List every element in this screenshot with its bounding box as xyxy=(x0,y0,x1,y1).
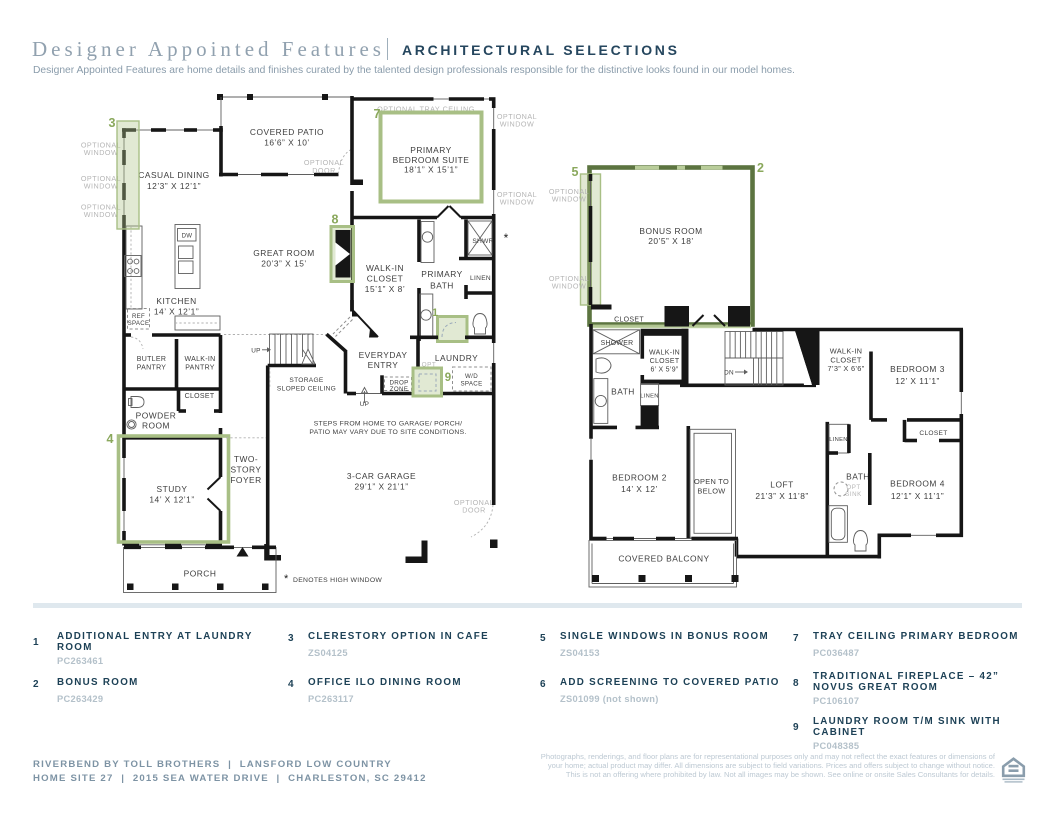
svg-text:16’6” X 10’: 16’6” X 10’ xyxy=(264,138,310,148)
svg-text:PATIO MAY VARY DUE TO SITE CON: PATIO MAY VARY DUE TO SITE CONDITIONS. xyxy=(309,429,466,436)
svg-text:2: 2 xyxy=(757,161,764,175)
svg-text:WINDOW: WINDOW xyxy=(552,195,587,204)
svg-text:12’3” X 12’1”: 12’3” X 12’1” xyxy=(147,181,201,191)
svg-text:SINK: SINK xyxy=(845,491,862,498)
svg-text:DOOR: DOOR xyxy=(462,506,486,515)
svg-text:3: 3 xyxy=(109,116,116,130)
svg-text:SPACE: SPACE xyxy=(128,320,150,327)
svg-text:WINDOW: WINDOW xyxy=(500,198,535,207)
svg-text:DN: DN xyxy=(724,370,734,377)
svg-text:CLOSET: CLOSET xyxy=(830,355,862,364)
svg-text:PRIMARY: PRIMARY xyxy=(421,269,463,279)
svg-text:PRIMARY: PRIMARY xyxy=(410,145,452,155)
svg-text:SPACE: SPACE xyxy=(460,381,482,388)
svg-text:POWDER: POWDER xyxy=(136,411,177,421)
svg-text:21’3” X 11’8”: 21’3” X 11’8” xyxy=(755,491,808,501)
svg-text:LINEN: LINEN xyxy=(640,394,659,400)
svg-text:WALK-IN: WALK-IN xyxy=(649,350,680,357)
svg-text:SLOPED CEILING: SLOPED CEILING xyxy=(277,386,336,393)
svg-text:SHWR: SHWR xyxy=(472,238,493,245)
svg-text:BONUS ROOM: BONUS ROOM xyxy=(639,226,702,236)
svg-text:STORAGE: STORAGE xyxy=(289,377,324,384)
svg-text:ZONE: ZONE xyxy=(390,386,408,393)
svg-text:29’1” X 21’1”: 29’1” X 21’1” xyxy=(355,482,409,492)
svg-text:WALK-IN: WALK-IN xyxy=(366,263,404,273)
svg-text:*: * xyxy=(284,573,289,585)
svg-text:UP: UP xyxy=(360,401,369,408)
svg-text:18’1” X 15’1”: 18’1” X 15’1” xyxy=(404,165,458,175)
svg-text:UP: UP xyxy=(251,348,260,355)
svg-text:KITCHEN: KITCHEN xyxy=(156,296,196,306)
svg-text:WINDOW: WINDOW xyxy=(84,210,119,219)
svg-text:CLOSET: CLOSET xyxy=(185,393,215,400)
svg-text:WINDOW: WINDOW xyxy=(552,282,587,291)
svg-text:STEPS FROM HOME TO GARAGE/ POR: STEPS FROM HOME TO GARAGE/ PORCH/ xyxy=(314,421,463,428)
svg-text:BATH: BATH xyxy=(846,472,870,482)
svg-text:4: 4 xyxy=(107,432,114,446)
svg-text:PANTRY: PANTRY xyxy=(185,365,215,372)
svg-text:BATH: BATH xyxy=(611,387,635,397)
svg-text:BUTLER: BUTLER xyxy=(137,356,166,363)
svg-text:1: 1 xyxy=(432,307,438,319)
svg-text:LAUNDRY: LAUNDRY xyxy=(435,353,478,363)
svg-text:DENOTES HIGH WINDOW: DENOTES HIGH WINDOW xyxy=(293,577,382,584)
svg-text:12’ X 11’1”: 12’ X 11’1” xyxy=(895,376,940,386)
svg-text:20’5” X 18’: 20’5” X 18’ xyxy=(648,236,694,246)
svg-text:PANTRY: PANTRY xyxy=(137,365,167,372)
svg-text:BEDROOM SUITE: BEDROOM SUITE xyxy=(393,155,470,165)
svg-text:15’1” X 8’: 15’1” X 8’ xyxy=(365,284,405,294)
svg-text:7’3” X 6’6”: 7’3” X 6’6” xyxy=(828,364,865,373)
svg-text:DOOR: DOOR xyxy=(312,166,336,175)
svg-text:FOYER: FOYER xyxy=(230,475,261,485)
svg-text:CASUAL DINING: CASUAL DINING xyxy=(138,170,209,180)
svg-text:OPT: OPT xyxy=(846,484,860,491)
svg-text:REF: REF xyxy=(132,313,145,320)
svg-text:BELOW: BELOW xyxy=(697,487,725,496)
svg-text:EVERYDAY: EVERYDAY xyxy=(359,350,408,360)
svg-text:OPT: OPT xyxy=(422,362,437,369)
svg-text:CLOSET: CLOSET xyxy=(650,358,680,365)
svg-text:WINDOW: WINDOW xyxy=(500,120,535,129)
svg-text:BATH: BATH xyxy=(430,281,454,291)
svg-text:BEDROOM 3: BEDROOM 3 xyxy=(890,364,945,374)
svg-text:LOFT: LOFT xyxy=(770,480,793,490)
svg-text:9: 9 xyxy=(445,372,451,384)
svg-text:BEDROOM 2: BEDROOM 2 xyxy=(612,473,667,483)
svg-text:14’ X 12’: 14’ X 12’ xyxy=(621,484,658,494)
svg-text:6’ X 5’9”: 6’ X 5’9” xyxy=(650,367,678,374)
svg-text:14’ X 12’1”: 14’ X 12’1” xyxy=(149,495,194,505)
svg-text:WINDOW: WINDOW xyxy=(84,182,119,191)
svg-text:CLOSET: CLOSET xyxy=(614,317,644,324)
svg-text:WALK-IN: WALK-IN xyxy=(184,356,215,363)
svg-text:ROOM: ROOM xyxy=(142,421,170,431)
svg-text:12’1” X 11’1”: 12’1” X 11’1” xyxy=(891,491,944,501)
svg-text:W/D: W/D xyxy=(465,373,478,380)
svg-text:STUDY: STUDY xyxy=(157,484,188,494)
svg-text:DW: DW xyxy=(182,233,193,240)
svg-text:WALK-IN: WALK-IN xyxy=(830,347,863,356)
svg-text:8: 8 xyxy=(332,213,339,227)
svg-text:BEDROOM 4: BEDROOM 4 xyxy=(890,479,945,489)
svg-text:GREAT ROOM: GREAT ROOM xyxy=(253,248,314,258)
svg-text:STORY: STORY xyxy=(230,465,261,475)
svg-text:20’3” X 15’: 20’3” X 15’ xyxy=(261,259,307,269)
svg-text:CLOSET: CLOSET xyxy=(367,274,404,284)
svg-text:TWO-: TWO- xyxy=(234,454,258,464)
svg-text:SHOWER: SHOWER xyxy=(601,340,634,347)
svg-text:PORCH: PORCH xyxy=(184,569,217,579)
svg-text:LINEN: LINEN xyxy=(470,275,491,282)
svg-text:COVERED PATIO: COVERED PATIO xyxy=(250,127,324,137)
svg-text:3-CAR GARAGE: 3-CAR GARAGE xyxy=(347,471,416,481)
svg-text:COVERED BALCONY: COVERED BALCONY xyxy=(618,554,709,564)
svg-text:14’ X 12’1”: 14’ X 12’1” xyxy=(154,307,199,317)
svg-text:5: 5 xyxy=(572,165,579,179)
svg-text:ENTRY: ENTRY xyxy=(368,360,399,370)
svg-text:LINEN: LINEN xyxy=(829,437,848,443)
svg-text:CLOSET: CLOSET xyxy=(919,430,947,437)
svg-text:*: * xyxy=(504,231,509,245)
svg-text:7: 7 xyxy=(374,107,381,121)
svg-text:WINDOW: WINDOW xyxy=(84,148,119,157)
svg-text:OPEN TO: OPEN TO xyxy=(694,477,729,486)
